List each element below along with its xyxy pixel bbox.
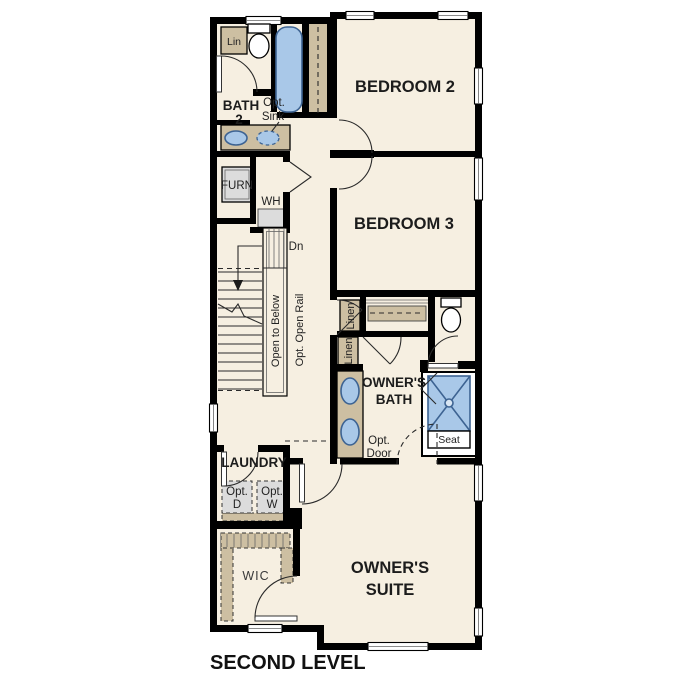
window <box>248 625 282 633</box>
owners-toilet <box>441 298 461 332</box>
opt-door-label-line1: Opt. <box>368 435 390 447</box>
bedroom2-label: BEDROOM 2 <box>355 78 455 96</box>
window <box>475 158 483 200</box>
linen-upper-label: Linen <box>345 303 357 330</box>
opt-sink-label-line1: Opt. <box>263 97 285 109</box>
open-to-below-label: Open to Below <box>270 295 282 367</box>
laundry-platform <box>222 513 287 521</box>
bath2-opt-sink <box>257 131 279 145</box>
floor-plan-drawing: Lin BATH 2 Opt. Sink FURN WH Dn Open to … <box>0 0 687 687</box>
owners-sink-2 <box>341 419 359 445</box>
opt-open-rail-label: Opt. Open Rail <box>294 294 306 367</box>
window <box>346 12 374 20</box>
page-title: SECOND LEVEL <box>210 652 366 674</box>
water-heater-box <box>258 209 284 227</box>
window <box>475 68 483 104</box>
water-heater-label: WH <box>261 196 280 208</box>
window <box>368 643 428 651</box>
wic-shelf-right <box>281 548 293 583</box>
owners-sink-1 <box>341 378 359 404</box>
bath2-toilet <box>248 24 270 58</box>
bedroom3-label: BEDROOM 3 <box>354 215 454 233</box>
owners-bath-label-line1: OWNER'S <box>362 375 426 390</box>
wic-shelf-top <box>221 533 290 548</box>
window <box>438 12 468 20</box>
opt-washer-label-line2: W <box>267 499 278 511</box>
furnace-label: FURN <box>221 180 253 192</box>
down-label: Dn <box>289 241 304 253</box>
owners-suite-label-line2: SUITE <box>366 581 415 599</box>
floor-plan-page: Lin BATH 2 Opt. Sink FURN WH Dn Open to … <box>0 0 687 687</box>
owners-bath-label-line2: BATH <box>376 392 413 407</box>
window <box>210 404 218 432</box>
lin-label: Lin <box>227 36 241 48</box>
window <box>475 465 483 501</box>
window <box>475 608 483 636</box>
wic-label: WIC <box>242 569 269 583</box>
bath2-label-line2: 2 <box>235 112 243 127</box>
linen-lower-label: Linen <box>343 338 355 365</box>
bath2-sink <box>225 131 247 145</box>
seat-label: Seat <box>438 434 460 446</box>
opt-dryer-label-line2: D <box>233 499 241 511</box>
opt-sink-label-line2: Sink <box>262 111 285 123</box>
opt-washer-label-line1: Opt. <box>261 486 283 498</box>
laundry-label: LAUNDRY <box>221 455 287 470</box>
window <box>246 17 281 25</box>
owners-suite-label-line1: OWNER'S <box>351 559 429 577</box>
opt-dryer-label-line1: Opt. <box>226 486 248 498</box>
bath2-label-line1: BATH <box>223 98 260 113</box>
opt-door-label-line2: Door <box>367 448 392 460</box>
